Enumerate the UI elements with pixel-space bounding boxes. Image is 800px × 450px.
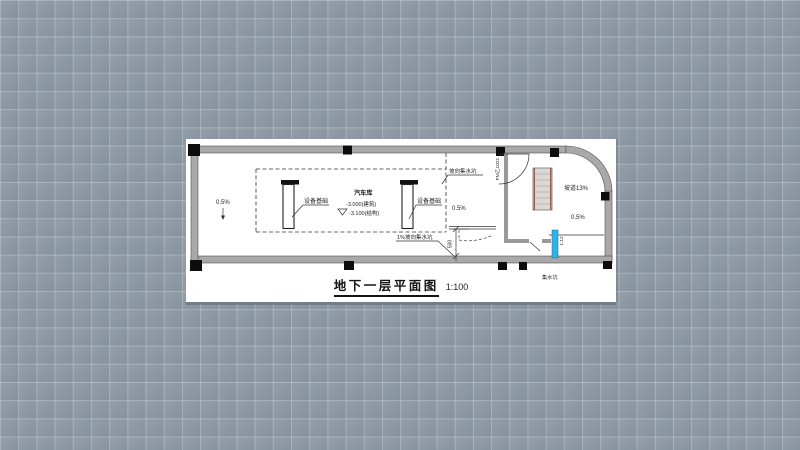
leader-equipment-left: 设备基础 bbox=[292, 197, 329, 217]
cad-canvas[interactable]: 设备基础 设备基础 汽车库 -3.000(建筑) -3.100(结构) 0.5% bbox=[0, 0, 800, 450]
room-name-label: 汽车库 bbox=[354, 189, 373, 197]
sump-hatch bbox=[552, 230, 558, 258]
down-arrow-icon bbox=[221, 216, 225, 221]
ramp-grade-label: 1:12 bbox=[559, 236, 565, 246]
wall-top bbox=[191, 146, 566, 153]
equipment-base-right-label: 设备基础 bbox=[417, 197, 441, 205]
stair-room-wall-left bbox=[504, 153, 508, 243]
equipment-pad-body bbox=[402, 185, 413, 229]
level-symbol-icon bbox=[338, 209, 347, 215]
equipment-pad-body bbox=[283, 185, 294, 229]
column bbox=[188, 144, 200, 156]
stair-room bbox=[499, 153, 604, 258]
slope-left: 0.5% bbox=[216, 200, 230, 220]
column bbox=[519, 262, 527, 270]
wall-bottom bbox=[191, 256, 612, 263]
door-swing-arc bbox=[499, 154, 529, 184]
column bbox=[603, 261, 612, 269]
elevation-architectural-label: -3.000(建筑) bbox=[346, 200, 376, 208]
drawing-title-text: 地下一层平面图 bbox=[334, 275, 439, 297]
drawing-title-scale: 1:100 bbox=[446, 282, 469, 292]
column bbox=[601, 192, 610, 201]
stair-flight bbox=[533, 168, 552, 210]
slope-left-label: 0.5% bbox=[216, 200, 230, 206]
fire-door-tag: FM乙1021 bbox=[494, 157, 501, 180]
column bbox=[343, 146, 352, 155]
slope-middle-label: 0.5% bbox=[452, 206, 466, 212]
drain-to-sump-label: 1%坡向集水坑 bbox=[397, 233, 433, 241]
dim-500-label: 500 bbox=[448, 240, 454, 249]
column bbox=[496, 147, 505, 156]
slope-to-sump-label: 坡向集水坑 bbox=[449, 167, 477, 175]
stair-room-wall-bottom bbox=[504, 239, 529, 243]
elevation-structural-label: -3.100(结构) bbox=[349, 209, 379, 217]
column bbox=[550, 148, 559, 157]
room-annotation: 汽车库 -3.000(建筑) -3.100(结构) bbox=[338, 189, 379, 217]
equipment-pad-left bbox=[281, 180, 299, 229]
slope-ramp-area-label: 0.5% bbox=[571, 215, 585, 221]
leader-slope-to-sump: 坡向集水坑 bbox=[442, 167, 483, 184]
column bbox=[190, 260, 202, 271]
wall-right bbox=[605, 191, 612, 263]
wall-left bbox=[191, 146, 198, 263]
equipment-pad-cap bbox=[400, 180, 418, 185]
drawing-sheet: 设备基础 设备基础 汽车库 -3.000(建筑) -3.100(结构) 0.5% bbox=[186, 139, 616, 302]
leader-drain-to-sump: 1%坡向集水坑 bbox=[396, 233, 454, 256]
equipment-pad-right bbox=[400, 180, 418, 229]
leader-equipment-right: 设备基础 bbox=[409, 197, 442, 219]
stair-room-wall-stub bbox=[542, 239, 551, 243]
drawing-title: 地下一层平面图 1:100 bbox=[186, 275, 616, 297]
column bbox=[344, 261, 354, 270]
column bbox=[498, 262, 507, 270]
lower-door-leaf bbox=[530, 242, 540, 251]
equipment-base-left-label: 设备基础 bbox=[304, 197, 328, 205]
ramp-slope-label: 坡道13% bbox=[564, 184, 589, 192]
equipment-pad-cap bbox=[281, 180, 299, 185]
depressed-slab-dashed-outline bbox=[256, 153, 446, 232]
